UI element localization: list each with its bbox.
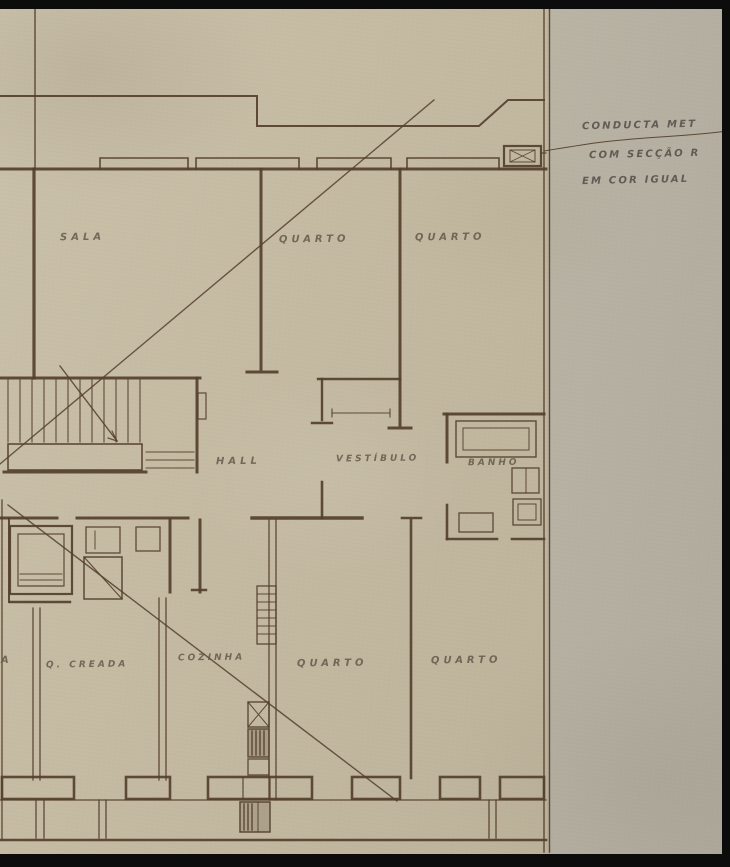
elevator-shaft <box>10 526 72 594</box>
upper-room-walls <box>34 169 411 428</box>
party-wall <box>544 9 550 852</box>
upper-boundary <box>0 9 544 169</box>
bathroom <box>444 414 544 539</box>
duct-marker <box>504 146 546 166</box>
room-label-creada: Q. CREADA <box>46 660 128 671</box>
scan-border-bottom <box>0 854 730 867</box>
kitchen-duct-column <box>248 586 276 775</box>
room-label-quarto-top-1: QUARTO <box>279 234 350 246</box>
window-recesses <box>100 158 499 169</box>
room-label-sala: SALA <box>60 232 105 243</box>
top-facade-wall <box>0 158 546 169</box>
room-label-quarto-bottom-1: QUARTO <box>297 658 368 670</box>
shaft-and-small-bath <box>9 518 206 602</box>
bathtub <box>456 421 536 457</box>
bottom-facade <box>0 777 546 840</box>
duct-hatched-box <box>248 729 269 757</box>
staircase <box>0 378 206 472</box>
hall-closet <box>312 379 400 423</box>
blueprint-scan: SALA QUARTO QUARTO HALL VESTÍBULO BANHO … <box>0 0 730 867</box>
annotation-line-2: COM SECÇÃO R <box>589 148 701 161</box>
room-label-banho: BANHO <box>468 458 520 469</box>
room-label-quarto-top-2: QUARTO <box>415 232 486 244</box>
annotation-line-3: EM COR IGUAL <box>582 174 690 187</box>
small-bathtub <box>86 527 120 553</box>
kitchen-cabinet <box>257 586 276 644</box>
room-label-cozinha: COZINHA <box>178 653 245 664</box>
room-label-quarto-bottom-2: QUARTO <box>431 655 502 667</box>
room-label-vestibulo: VESTÍBULO <box>336 454 419 465</box>
room-label-edge-fragment: A <box>1 655 13 666</box>
scan-border-top <box>0 0 730 9</box>
bidet <box>513 499 541 525</box>
section-diagonals <box>0 100 434 801</box>
winder-steps <box>146 452 194 468</box>
room-label-hall: HALL <box>216 456 261 467</box>
scan-border-right <box>722 0 730 867</box>
sink <box>459 513 493 532</box>
